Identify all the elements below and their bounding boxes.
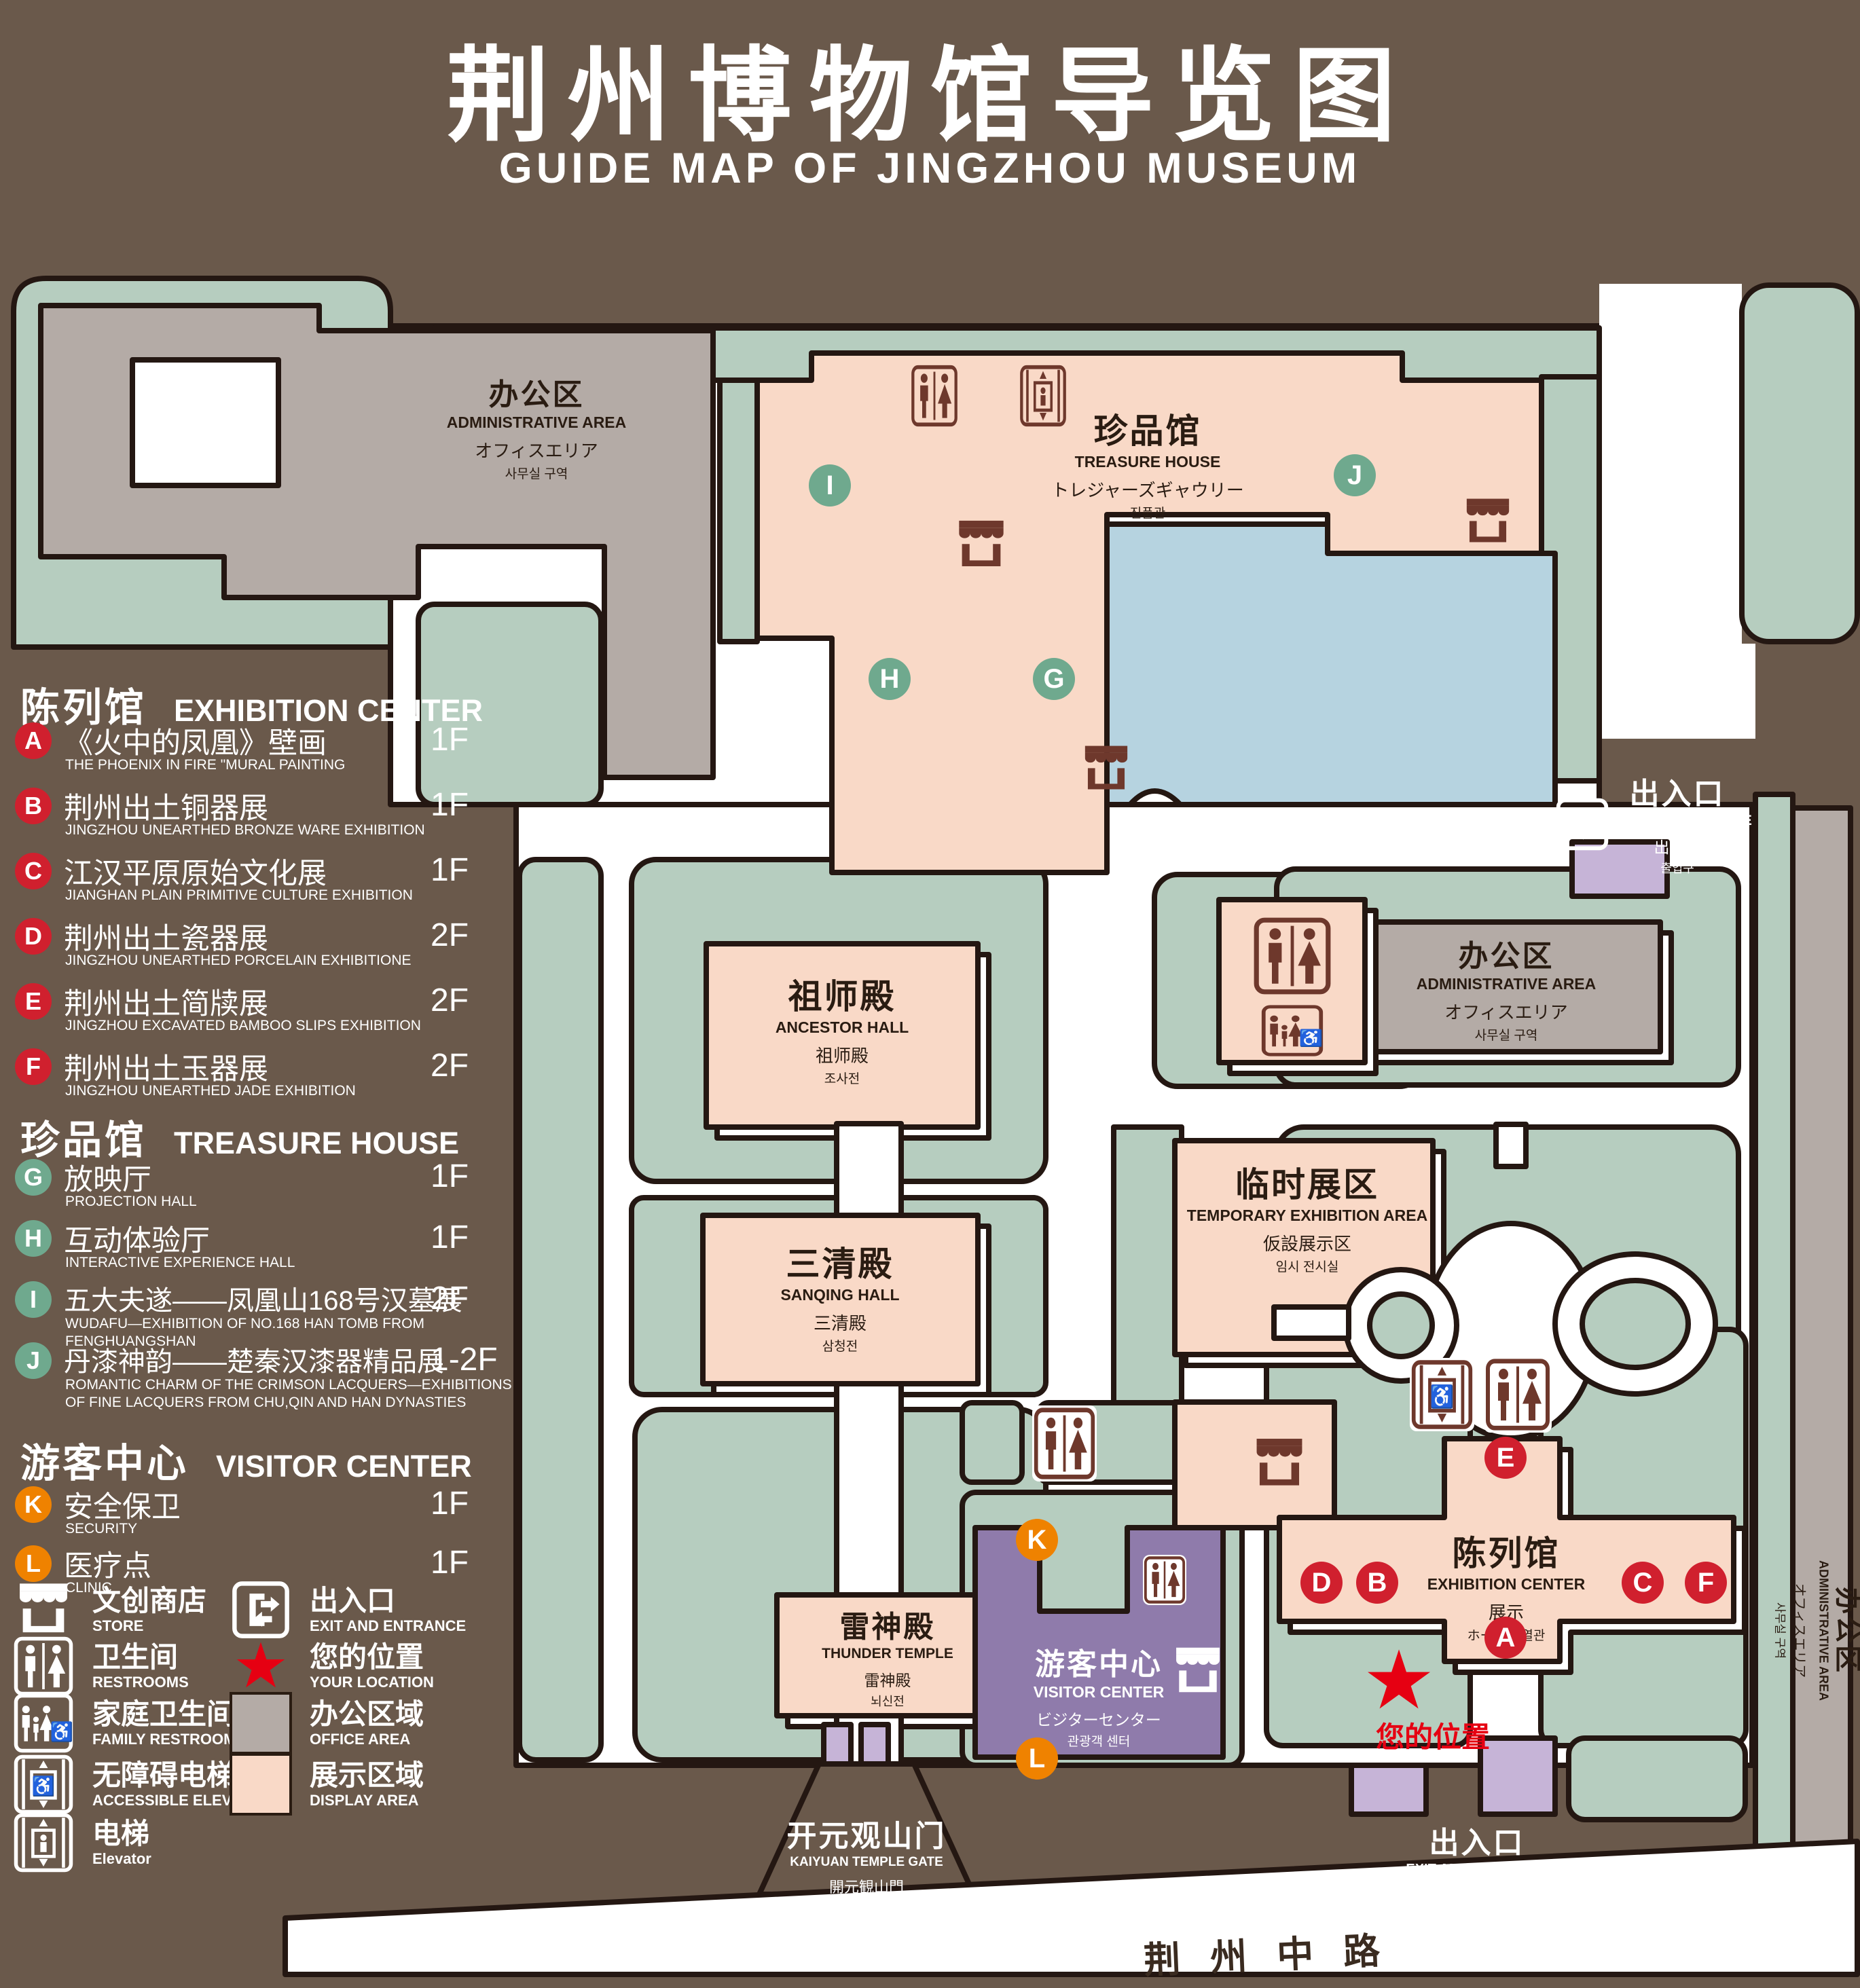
garden-path-west bbox=[1274, 1307, 1349, 1338]
label-visitor-center: 游客中心 VISITOR CENTER ビジターセンター 관광객 센터 bbox=[1034, 1640, 1165, 1750]
legend-item-J: J 丹漆神韵——楚秦汉漆器精品展 ROMANTIC CHARM OF THE C… bbox=[15, 1340, 516, 1402]
floor-label: 2F bbox=[431, 917, 469, 954]
store-icon bbox=[1169, 1643, 1226, 1700]
legend-section-visitor: 游客中心 VISITOR CENTER bbox=[20, 1431, 472, 1488]
floor-label: 2F bbox=[431, 982, 469, 1019]
green-left-tall-strip bbox=[519, 860, 601, 1760]
floor-label: 1F bbox=[431, 1485, 469, 1522]
page-subtitle: GUIDE MAP OF JINGZHOU MUSEUM bbox=[0, 144, 1860, 193]
legend-item-C: C 江汉平原原始文化展 JIANGHAN PLAIN PRIMITIVE CUL… bbox=[15, 850, 516, 913]
marker-E: E bbox=[15, 983, 52, 1020]
your-location-text: 您的位置 bbox=[1376, 1714, 1490, 1756]
label-admin-right: 办公区 ADMINISTRATIVE AREA オフィスエリア 사무실 구역 bbox=[1417, 932, 1597, 1044]
legend-symbol-restrooms: 卫生间 RESTROOMS bbox=[12, 1635, 189, 1697]
elevator-icon bbox=[1019, 363, 1068, 428]
exit-bottom-pad-right bbox=[1480, 1738, 1555, 1814]
legend-symbol-office-area: 办公区域 OFFICE AREA bbox=[230, 1692, 424, 1754]
gate-pillar-left bbox=[824, 1725, 851, 1764]
store-icon bbox=[1460, 494, 1516, 550]
restrooms-icon bbox=[1143, 1555, 1186, 1605]
map-marker-H: H bbox=[869, 658, 911, 700]
map-marker-I: I bbox=[809, 464, 851, 507]
marker-C: C bbox=[15, 853, 52, 889]
store-icon bbox=[12, 1579, 75, 1641]
exit-icon bbox=[1554, 796, 1611, 853]
floor-label: 1F bbox=[431, 721, 469, 758]
green-top-right-column bbox=[1742, 285, 1857, 642]
floor-label: 1F bbox=[431, 851, 469, 889]
legend-item-H: H 互动体验厅 INTERACTIVE EXPERIENCE HALL 1F bbox=[15, 1217, 516, 1280]
family-restrooms-icon bbox=[12, 1692, 75, 1754]
floor-label: 2F bbox=[431, 1280, 469, 1317]
label-sanqing-hall: 三清殿 SANQING HALL 三清殿 삼청전 bbox=[780, 1237, 899, 1355]
store-icon bbox=[952, 516, 1010, 574]
store-icon bbox=[1078, 741, 1134, 797]
marker-G: G bbox=[15, 1159, 52, 1196]
map-marker-L: L bbox=[1016, 1737, 1058, 1780]
marker-A: A bbox=[15, 722, 52, 759]
floor-label: 1F bbox=[431, 1219, 469, 1256]
marker-D: D bbox=[15, 918, 52, 955]
legend-item-B: B 荆州出土铜器展 JINGZHOU UNEARTHED BRONZE WARE… bbox=[15, 785, 516, 847]
marker-K: K bbox=[15, 1486, 52, 1523]
green-strip-left-of-treasure bbox=[720, 380, 757, 642]
family-restrooms-icon bbox=[1260, 1004, 1325, 1058]
road bbox=[285, 1841, 1857, 1974]
floor-label: 1-2F bbox=[431, 1341, 498, 1378]
map-marker-E: E bbox=[1484, 1437, 1527, 1479]
restrooms-icon bbox=[910, 363, 959, 428]
path-channel-2 bbox=[837, 1384, 901, 1595]
restrooms-icon bbox=[1252, 915, 1333, 997]
green-temp-hook bbox=[1114, 1127, 1182, 1412]
marker-J: J bbox=[15, 1342, 52, 1379]
page-title: 荆州博物馆导览图 bbox=[0, 12, 1860, 162]
elevator-icon bbox=[12, 1811, 75, 1874]
label-exit-right: 出入口 EXIT AND ENTRANCE 出入口 출입구 bbox=[1603, 769, 1752, 877]
legend-item-E: E 荆州出土简牍展 JINGZHOU EXCAVATED BAMBOO SLIP… bbox=[15, 980, 516, 1043]
display-area-swatch bbox=[230, 1753, 292, 1816]
label-exit-bottom: 出入口 EXIT AND ENTRANCE 出入口 출입구 bbox=[1406, 1818, 1548, 1925]
green-visitor-top-a bbox=[962, 1403, 1022, 1482]
your-location-star: ★ bbox=[230, 1635, 292, 1697]
green-bottom-right-block bbox=[1569, 1738, 1745, 1820]
gate-pillar-right bbox=[861, 1725, 888, 1764]
map-marker-J: J bbox=[1334, 454, 1376, 496]
marker-I: I bbox=[15, 1281, 52, 1318]
legend-item-A: A 《火中的凤凰》壁画 THE PHOENIX IN FIRE "MURAL P… bbox=[15, 720, 516, 782]
legend-item-G: G 放映厅 PROJECTION HALL 1F bbox=[15, 1156, 516, 1219]
floor-label: 2F bbox=[431, 1047, 469, 1084]
map-marker-A: A bbox=[1484, 1617, 1527, 1659]
floor-label: 1F bbox=[431, 1544, 469, 1581]
legend-item-I: I 五大夫遂——凤凰山168号汉墓展 WUDAFU—EXHIBITION OF … bbox=[15, 1278, 516, 1341]
marker-L: L bbox=[15, 1545, 52, 1582]
legend-item-F: F 荆州出土玉器展 JINGZHOU UNEARTHED JADE EXHIBI… bbox=[15, 1046, 516, 1108]
label-temporary-exhibition: 临时展区 TEMPORARY EXHIBITION AREA 仮設展示区 임시 … bbox=[1187, 1158, 1427, 1275]
label-kaiyuan-gate: 开元观山门 KAIYUAN TEMPLE GATE 開元観山門 산문을 열다 bbox=[787, 1811, 947, 1916]
garden-ring-left-inner bbox=[1370, 1294, 1432, 1357]
exit-bottom-pad-left bbox=[1351, 1765, 1426, 1814]
map-marker-C: C bbox=[1622, 1562, 1664, 1604]
label-ancestor-hall: 祖师殿 ANCESTOR HALL 祖师殿 조사전 bbox=[776, 970, 909, 1087]
your-location-star-map: ★ bbox=[1362, 1640, 1436, 1721]
admin-top-left-courtyard bbox=[132, 360, 278, 485]
legend-symbol-family-restrooms: 家庭卫生间 FAMILY RESTROOMS bbox=[12, 1692, 246, 1754]
store-icon bbox=[1250, 1434, 1309, 1494]
map-marker-B: B bbox=[1356, 1562, 1398, 1604]
label-thunder-temple: 雷神殿 THUNDER TEMPLE 雷神殿 뇌신전 bbox=[822, 1602, 953, 1710]
legend-symbol-your-location: ★ 您的位置 YOUR LOCATION bbox=[230, 1635, 434, 1697]
legend-symbol-elevator: 电梯 Elevator bbox=[12, 1811, 151, 1874]
marker-F: F bbox=[15, 1048, 52, 1085]
map-marker-K: K bbox=[1016, 1519, 1058, 1561]
legend-item-D: D 荆州出土瓷器展 JINGZHOU UNEARTHED PORCELAIN E… bbox=[15, 915, 516, 978]
restrooms-icon bbox=[12, 1635, 75, 1697]
map-marker-G: G bbox=[1033, 658, 1075, 700]
marker-B: B bbox=[15, 788, 52, 824]
plaza-right bbox=[1599, 644, 1755, 739]
map-marker-D: D bbox=[1300, 1562, 1343, 1604]
floor-label: 1F bbox=[431, 786, 469, 824]
restrooms-icon bbox=[1484, 1357, 1552, 1433]
plaza-top-right bbox=[1599, 284, 1742, 644]
label-admin-top-left: 办公区 ADMINISTRATIVE AREA オフィスエリア 사무실 구역 bbox=[447, 370, 627, 482]
legend-symbol-store: 文创商店 STORE bbox=[12, 1579, 206, 1641]
garden-ring-right-inner bbox=[1582, 1281, 1688, 1367]
legend-item-K: K 安全保卫 SECURITY 1F bbox=[15, 1484, 516, 1546]
label-treasure-house: 珍品馆 TREASURE HOUSE トレジャーズギャウリー 진품관 bbox=[1051, 404, 1243, 521]
path-channel-1 bbox=[837, 1124, 901, 1215]
legend-symbol-display-area: 展示区域 DISPLAY AREA bbox=[230, 1753, 424, 1816]
floor-label: 1F bbox=[431, 1158, 469, 1195]
office-area-swatch bbox=[230, 1692, 292, 1754]
garden-path-north bbox=[1496, 1124, 1526, 1166]
map-marker-F: F bbox=[1685, 1562, 1727, 1604]
marker-H: H bbox=[15, 1220, 52, 1257]
accessible-elevator-icon bbox=[12, 1753, 75, 1816]
restrooms-icon bbox=[1032, 1405, 1097, 1481]
label-road: 荆州中路 bbox=[1143, 1919, 1411, 1984]
accessible-elevator-icon bbox=[1410, 1358, 1474, 1431]
